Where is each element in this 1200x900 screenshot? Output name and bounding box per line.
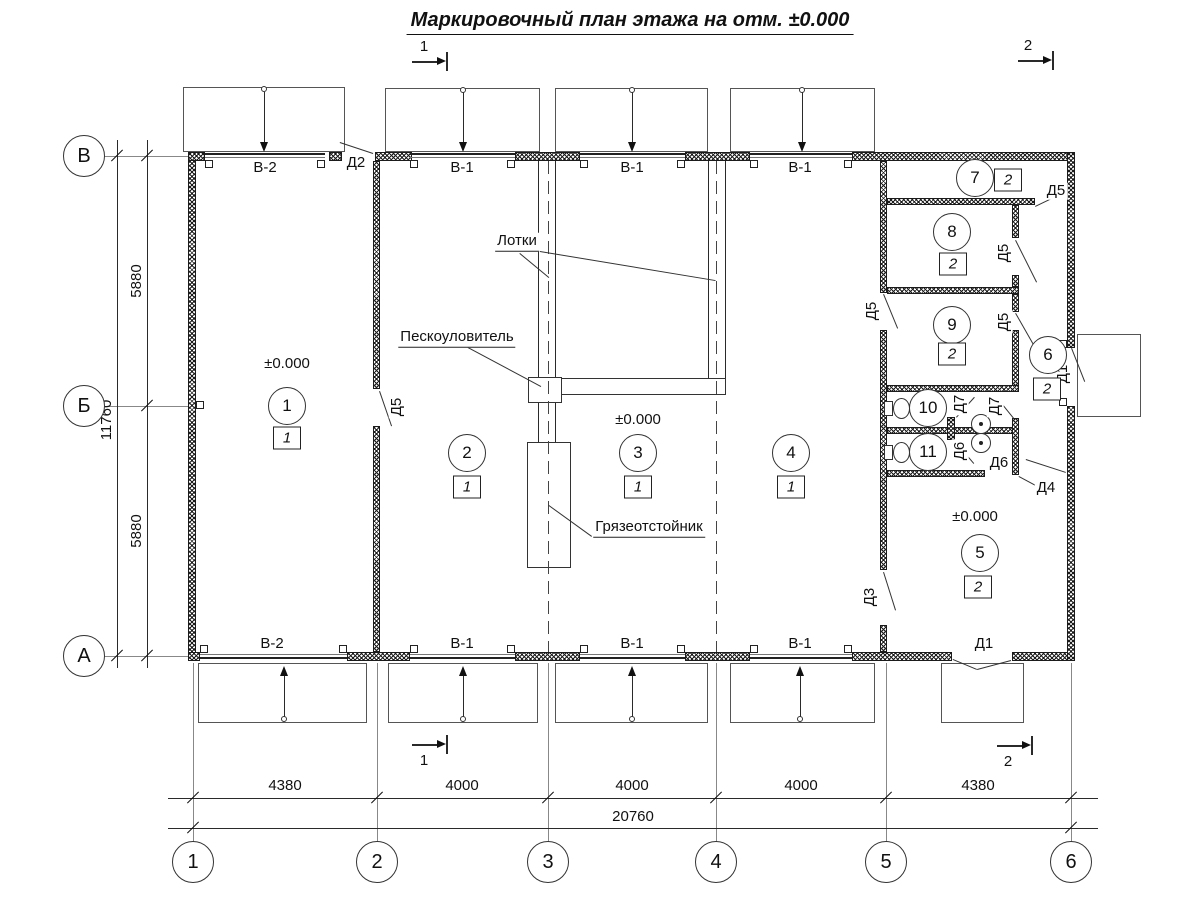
arrowhead-icon (280, 666, 288, 676)
room-number: 3 (619, 434, 657, 472)
partition-wall (1012, 294, 1019, 312)
window-opening (410, 153, 515, 155)
door-mark: Д5 (389, 396, 406, 419)
grid-axis-col: 6 (1050, 841, 1092, 883)
dimension-value: 4380 (959, 778, 996, 795)
grid-axis-col: 5 (865, 841, 907, 883)
wall-pier (188, 152, 205, 161)
arrow-tail (261, 86, 267, 92)
leader-line (519, 253, 549, 278)
exterior-wall-left (188, 152, 196, 661)
room-number: 2 (448, 434, 486, 472)
jamb-block (507, 645, 515, 653)
floor-type-box: 1 (453, 476, 481, 499)
room-number: 5 (961, 534, 999, 572)
section-mark-number: 1 (418, 753, 430, 770)
door-leaf (883, 294, 898, 329)
grid-axis-row: В (63, 135, 105, 177)
partition-wall (1012, 330, 1019, 387)
toilet-bowl (893, 442, 910, 463)
wall-pier (329, 152, 342, 161)
door-mark: Д6 (988, 455, 1011, 472)
partition-wall (947, 417, 955, 440)
wall-pier (515, 652, 580, 661)
door-mark: Д5 (864, 300, 881, 323)
tray-channel-line (555, 403, 556, 442)
door-mark: Д7 (987, 395, 1004, 418)
exterior-wall-right (1067, 406, 1075, 661)
wall-pier (347, 652, 410, 661)
window-opening (580, 153, 685, 155)
floor-type-box: 2 (939, 253, 967, 276)
partition-wall (373, 426, 380, 652)
window-opening (580, 657, 685, 659)
arrowhead-icon (459, 142, 467, 152)
extension-line (193, 663, 194, 845)
jamb-block (844, 645, 852, 653)
section-arrow-icon (1043, 56, 1052, 64)
window-mark: В-1 (786, 160, 813, 177)
window-mark: В-1 (786, 636, 813, 653)
partition-wall (1012, 275, 1019, 287)
grid-axis-row: Б (63, 385, 105, 427)
toilet-bowl (893, 398, 910, 419)
floor-plan-drawing: Маркировочный план этажа на отм. ±0.000 (0, 0, 1200, 900)
grid-axis-row: А (63, 635, 105, 677)
drawing-title: Маркировочный план этажа на отм. ±0.000 (407, 9, 854, 35)
partition-wall (1012, 205, 1019, 238)
arrow-tail (281, 716, 287, 722)
jamb-block (677, 645, 685, 653)
room-number: 8 (933, 213, 971, 251)
jamb-block (410, 645, 418, 653)
section-mark-number: 2 (1002, 754, 1014, 771)
extension-line (377, 663, 378, 845)
arrowhead-icon (628, 142, 636, 152)
floor-type-box: 2 (1033, 378, 1061, 401)
tray-connector (561, 378, 726, 395)
elevation-mark: ±0.000 (613, 412, 663, 429)
door-mark: Д5 (996, 311, 1013, 334)
slope-arrow (632, 92, 633, 144)
jamb-block (507, 160, 515, 168)
window-mark: В-1 (448, 636, 475, 653)
wall-pier (685, 152, 750, 161)
partition-wall (373, 161, 380, 389)
extension-line (886, 663, 887, 845)
dimension-value: 4000 (443, 778, 480, 795)
dimension-value: 4380 (266, 778, 303, 795)
trays-label: Лотки (495, 233, 539, 252)
window-mark: В-2 (251, 160, 278, 177)
partition-wall (887, 287, 1019, 294)
entrance-porch (941, 663, 1024, 723)
floor-type-box: 2 (964, 576, 992, 599)
leader-line (468, 347, 542, 387)
section-arrow-icon (437, 57, 446, 65)
grid-axis-col: 3 (527, 841, 569, 883)
elevation-mark: ±0.000 (950, 509, 1000, 526)
tray-channel-line (538, 403, 539, 442)
jamb-block (750, 645, 758, 653)
room-number: 4 (772, 434, 810, 472)
door-mark: Д4 (1035, 480, 1058, 497)
door-mark: Д5 (1045, 183, 1068, 200)
room-number: 7 (956, 159, 994, 197)
leader-line (540, 251, 716, 281)
slope-arrow (284, 672, 285, 718)
arrow-tail (629, 716, 635, 722)
tray-channel-line (725, 161, 726, 378)
partition-wall (887, 385, 1019, 392)
toilet-tank (884, 401, 893, 416)
room-number: 10 (909, 389, 947, 427)
floor-type-box: 2 (994, 169, 1022, 192)
arrow-tail (797, 716, 803, 722)
window-mark: В-1 (448, 160, 475, 177)
grid-axis-4-line (716, 161, 717, 652)
window-opening (750, 654, 852, 655)
dimension-value: 4000 (782, 778, 819, 795)
sand-trap-label: Пескоуловитель (398, 329, 515, 348)
wall-pier (1012, 652, 1075, 661)
door-mark: Д7 (952, 393, 969, 416)
floor-type-box: 1 (624, 476, 652, 499)
extension-line (548, 663, 549, 845)
floor-type-box: 1 (777, 476, 805, 499)
section-mark-bar (446, 52, 448, 71)
section-mark-number: 2 (1022, 38, 1034, 55)
window-opening (205, 153, 325, 155)
slope-arrow (463, 92, 464, 144)
door-mark: Д2 (345, 155, 368, 172)
jamb-block (200, 645, 208, 653)
jamb-block (750, 160, 758, 168)
window-opening (410, 657, 515, 659)
wall-pier (188, 652, 200, 661)
window-mark: В-2 (258, 636, 285, 653)
room-number: 6 (1029, 336, 1067, 374)
mud-settler-label: Грязеотстойник (593, 519, 705, 538)
jamb-block (844, 160, 852, 168)
arrowhead-icon (628, 666, 636, 676)
door-leaf (883, 572, 896, 610)
partition-wall (880, 625, 887, 652)
partition-wall (1012, 418, 1019, 475)
jamb-block (317, 160, 325, 168)
arrow-tail (460, 87, 466, 93)
partition-wall (880, 161, 887, 293)
floor-type-box: 1 (273, 427, 301, 450)
window-opening (750, 153, 852, 155)
dimension-line (117, 140, 118, 668)
slope-arrow (800, 672, 801, 718)
slope-arrow (463, 672, 464, 718)
wall-pier (852, 652, 952, 661)
section-mark-number: 1 (418, 39, 430, 56)
arrow-tail (799, 87, 805, 93)
washbasin-drain (979, 422, 983, 426)
section-mark-line (1018, 60, 1044, 62)
door-mark: Д1 (973, 636, 996, 653)
exterior-wall-right (1067, 152, 1075, 348)
arrowhead-icon (459, 666, 467, 676)
room-number: 11 (909, 433, 947, 471)
window-opening (750, 657, 852, 659)
arrowhead-icon (260, 142, 268, 152)
partition-wall (887, 470, 985, 477)
grid-axis-col: 2 (356, 841, 398, 883)
toilet-tank (884, 445, 893, 460)
dimension-line (168, 828, 1098, 829)
door-mark: Д5 (996, 242, 1013, 265)
slope-arrow (632, 672, 633, 718)
arrow-tail (629, 87, 635, 93)
room-number: 9 (933, 306, 971, 344)
grid-axis-col: 1 (172, 841, 214, 883)
entrance-porch (1077, 334, 1141, 417)
arrowhead-icon (798, 142, 806, 152)
wall-pier (515, 152, 580, 161)
dimension-line (168, 798, 1098, 799)
jamb-block (339, 645, 347, 653)
partition-wall (887, 198, 1035, 205)
door-mark: Д6 (952, 440, 969, 463)
dimension-value: 5880 (129, 512, 146, 549)
jamb-block (580, 645, 588, 653)
dimension-total: 20760 (610, 809, 656, 826)
window-opening (200, 654, 347, 655)
extension-line (716, 663, 717, 845)
floor-type-box: 2 (938, 343, 966, 366)
grid-axis-3-line (548, 161, 549, 652)
window-opening (580, 654, 685, 655)
exterior-wall-top-right (852, 152, 1075, 161)
door-mark: Д3 (862, 586, 879, 609)
tray-channel-line (708, 161, 709, 378)
section-arrow-icon (437, 740, 446, 748)
jamb-block (205, 160, 213, 168)
slope-arrow (264, 92, 265, 144)
section-mark-line (412, 61, 438, 63)
window-mark: В-1 (618, 636, 645, 653)
section-mark-bar (446, 735, 448, 754)
section-mark-bar (1052, 51, 1054, 70)
dimension-value: 5880 (129, 262, 146, 299)
dimension-value: 4000 (613, 778, 650, 795)
section-mark-line (997, 745, 1023, 747)
jamb-block (580, 160, 588, 168)
door-leaf (1026, 459, 1066, 473)
arrow-tail (460, 716, 466, 722)
wall-pier (685, 652, 750, 661)
section-arrow-icon (1022, 741, 1031, 749)
wall-pier (375, 152, 412, 161)
window-mark: В-1 (618, 160, 645, 177)
elevation-mark: ±0.000 (262, 356, 312, 373)
jamb-block (677, 160, 685, 168)
section-mark-bar (1031, 736, 1033, 755)
room-number: 1 (268, 387, 306, 425)
pilaster (196, 401, 204, 409)
extension-line (1071, 663, 1072, 845)
jamb-block (410, 160, 418, 168)
window-opening (200, 657, 347, 659)
washbasin-drain (979, 441, 983, 445)
slope-arrow (802, 92, 803, 144)
window-opening (410, 654, 515, 655)
section-mark-line (412, 744, 438, 746)
grid-axis-col: 4 (695, 841, 737, 883)
tray-channel-line (555, 161, 556, 377)
arrowhead-icon (796, 666, 804, 676)
